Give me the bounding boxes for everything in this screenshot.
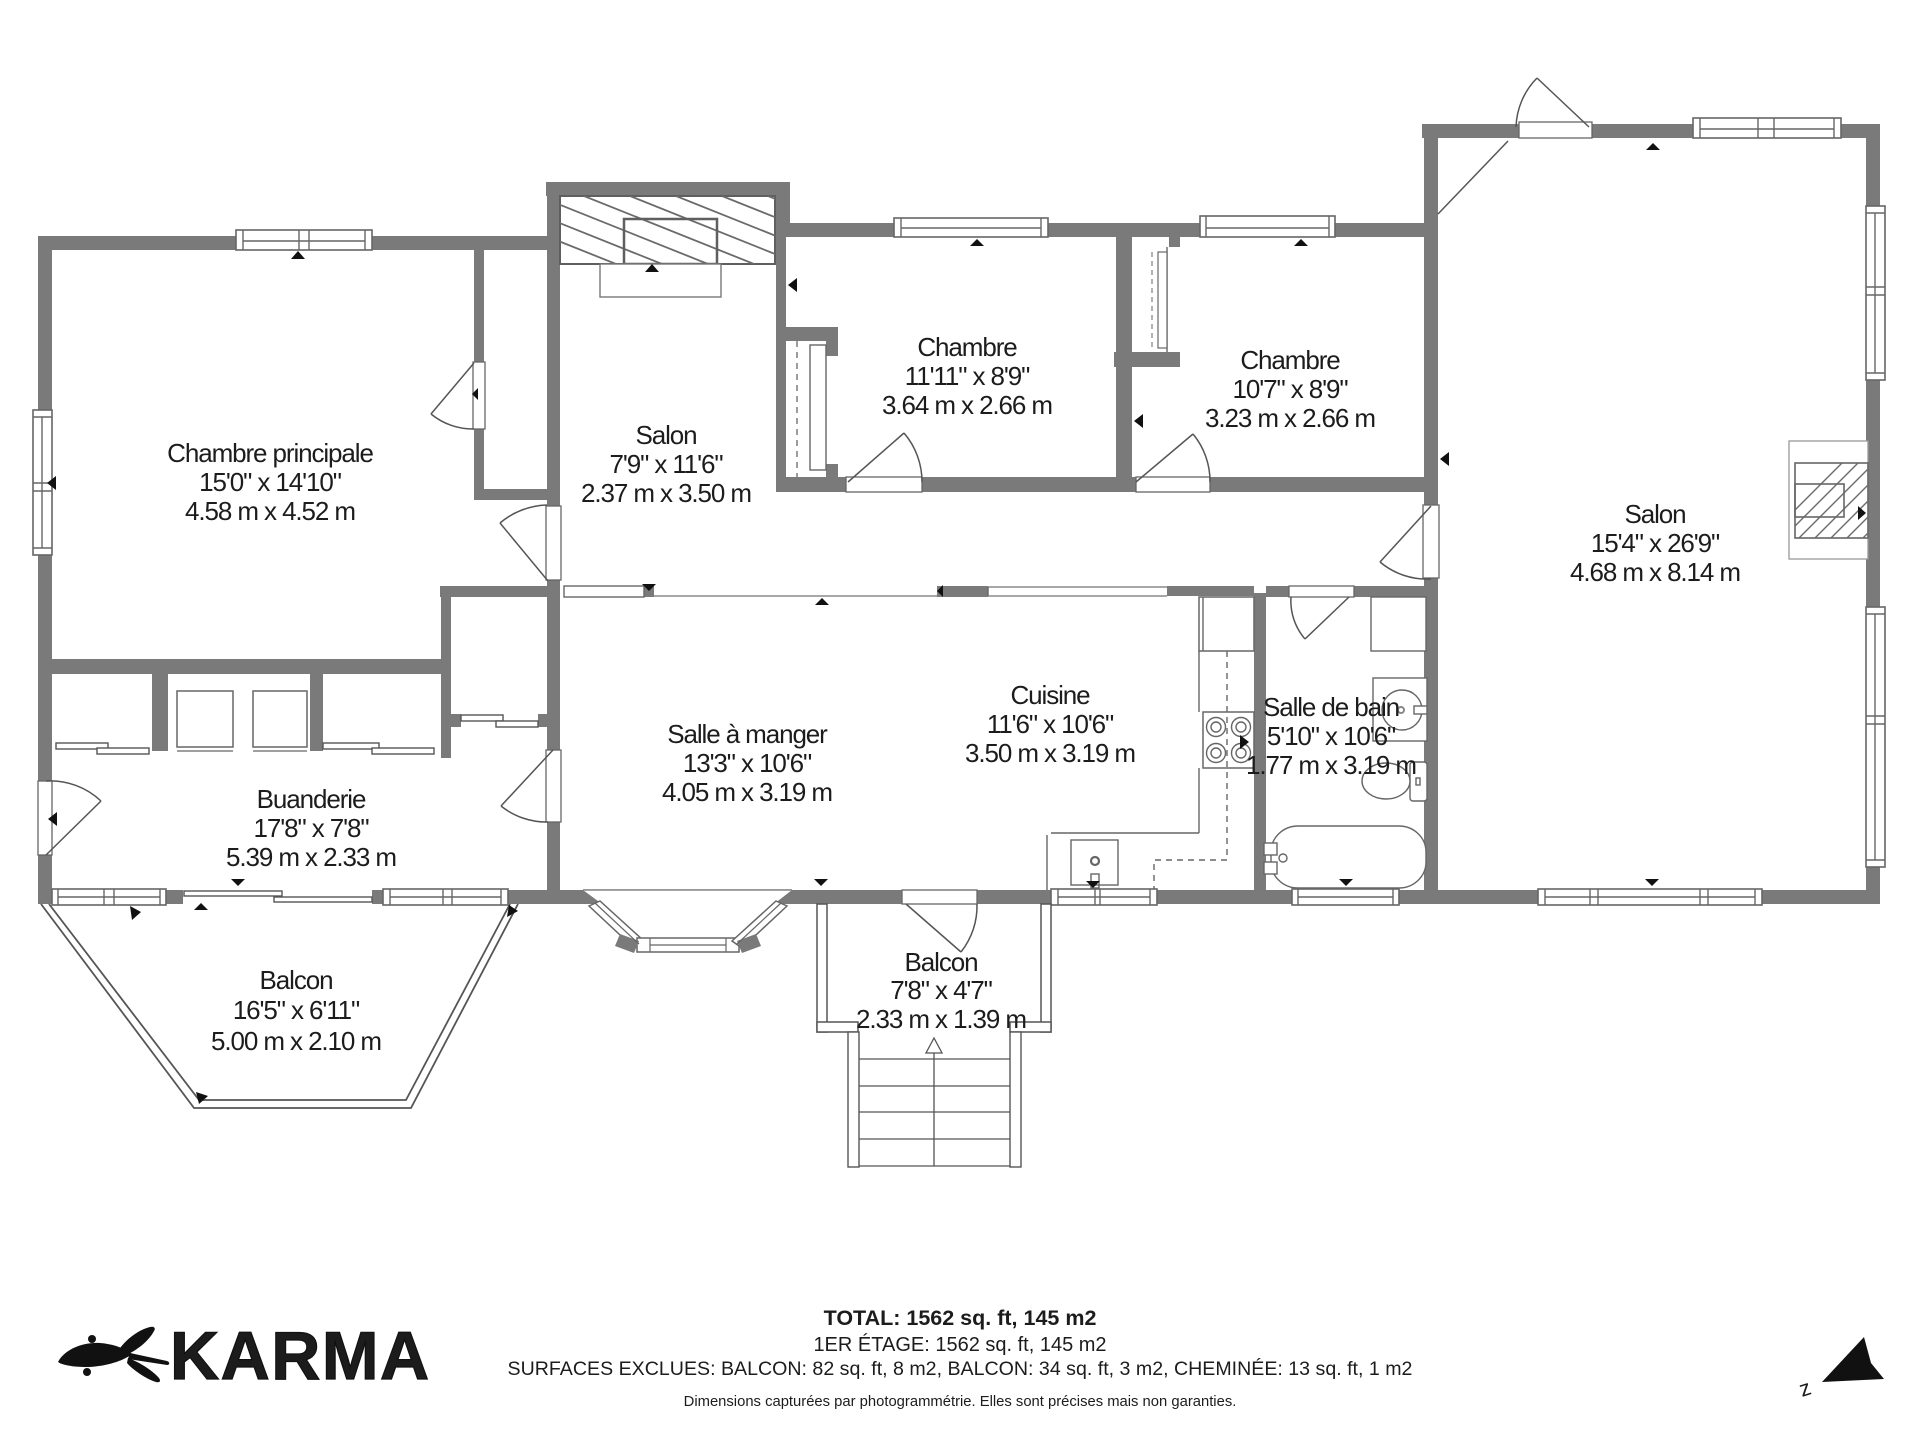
- svg-text:4.68 m x 8.14 m: 4.68 m x 8.14 m: [1570, 557, 1740, 587]
- svg-text:15'0" x 14'10": 15'0" x 14'10": [199, 467, 342, 497]
- svg-text:Balcon: Balcon: [260, 965, 333, 995]
- svg-text:7'8" x 4'7": 7'8" x 4'7": [890, 975, 992, 1005]
- svg-text:Balcon: Balcon: [905, 947, 978, 977]
- svg-text:5.00 m x 2.10 m: 5.00 m x 2.10 m: [211, 1026, 381, 1056]
- svg-text:Buanderie: Buanderie: [257, 784, 366, 814]
- svg-text:Chambre: Chambre: [917, 332, 1017, 362]
- svg-text:Cuisine: Cuisine: [1010, 680, 1090, 710]
- svg-text:5'10" x 10'6": 5'10" x 10'6": [1267, 721, 1396, 751]
- svg-text:1.77 m x 3.19 m: 1.77 m x 3.19 m: [1246, 750, 1416, 780]
- svg-text:KARMA: KARMA: [170, 1318, 431, 1394]
- svg-text:16'5" x 6'11": 16'5" x 6'11": [233, 995, 360, 1025]
- svg-text:7'9" x 11'6": 7'9" x 11'6": [609, 449, 723, 479]
- svg-text:Salle à manger: Salle à manger: [667, 719, 828, 749]
- svg-text:10'7" x 8'9": 10'7" x 8'9": [1233, 374, 1349, 404]
- svg-text:3.23 m x 2.66 m: 3.23 m x 2.66 m: [1205, 403, 1375, 433]
- svg-text:3.64 m x 2.66 m: 3.64 m x 2.66 m: [882, 390, 1052, 420]
- svg-text:Chambre: Chambre: [1240, 345, 1340, 375]
- svg-text:Salle de bain: Salle de bain: [1263, 692, 1399, 722]
- svg-text:SURFACES EXCLUES: BALCON: 82 s: SURFACES EXCLUES: BALCON: 82 sq. ft, 8 m…: [508, 1357, 1413, 1380]
- svg-text:3.50 m x 3.19 m: 3.50 m x 3.19 m: [965, 738, 1135, 768]
- svg-text:1ER ÉTAGE: 1562 sq. ft, 145 m2: 1ER ÉTAGE: 1562 sq. ft, 145 m2: [813, 1333, 1106, 1356]
- svg-text:Dimensions capturées par photo: Dimensions capturées par photogrammétrie…: [684, 1394, 1237, 1410]
- svg-text:13'3" x 10'6": 13'3" x 10'6": [683, 748, 812, 778]
- svg-text:17'8" x 7'8": 17'8" x 7'8": [254, 813, 370, 843]
- svg-text:4.58 m x 4.52 m: 4.58 m x 4.52 m: [185, 496, 355, 526]
- svg-text:5.39 m x 2.33 m: 5.39 m x 2.33 m: [226, 842, 396, 872]
- svg-text:TOTAL: 1562 sq. ft, 145 m2: TOTAL: 1562 sq. ft, 145 m2: [824, 1306, 1097, 1330]
- svg-text:Salon: Salon: [636, 420, 697, 450]
- svg-text:2.33 m x 1.39 m: 2.33 m x 1.39 m: [856, 1004, 1026, 1034]
- svg-text:Chambre principale: Chambre principale: [167, 438, 373, 468]
- svg-text:2.37 m x 3.50 m: 2.37 m x 3.50 m: [581, 478, 751, 508]
- svg-text:11'11" x 8'9": 11'11" x 8'9": [905, 361, 1030, 391]
- svg-text:Salon: Salon: [1625, 499, 1686, 529]
- svg-text:11'6" x 10'6": 11'6" x 10'6": [987, 709, 1114, 739]
- svg-text:15'4" x 26'9": 15'4" x 26'9": [1591, 528, 1720, 558]
- svg-text:4.05 m x 3.19 m: 4.05 m x 3.19 m: [662, 777, 832, 807]
